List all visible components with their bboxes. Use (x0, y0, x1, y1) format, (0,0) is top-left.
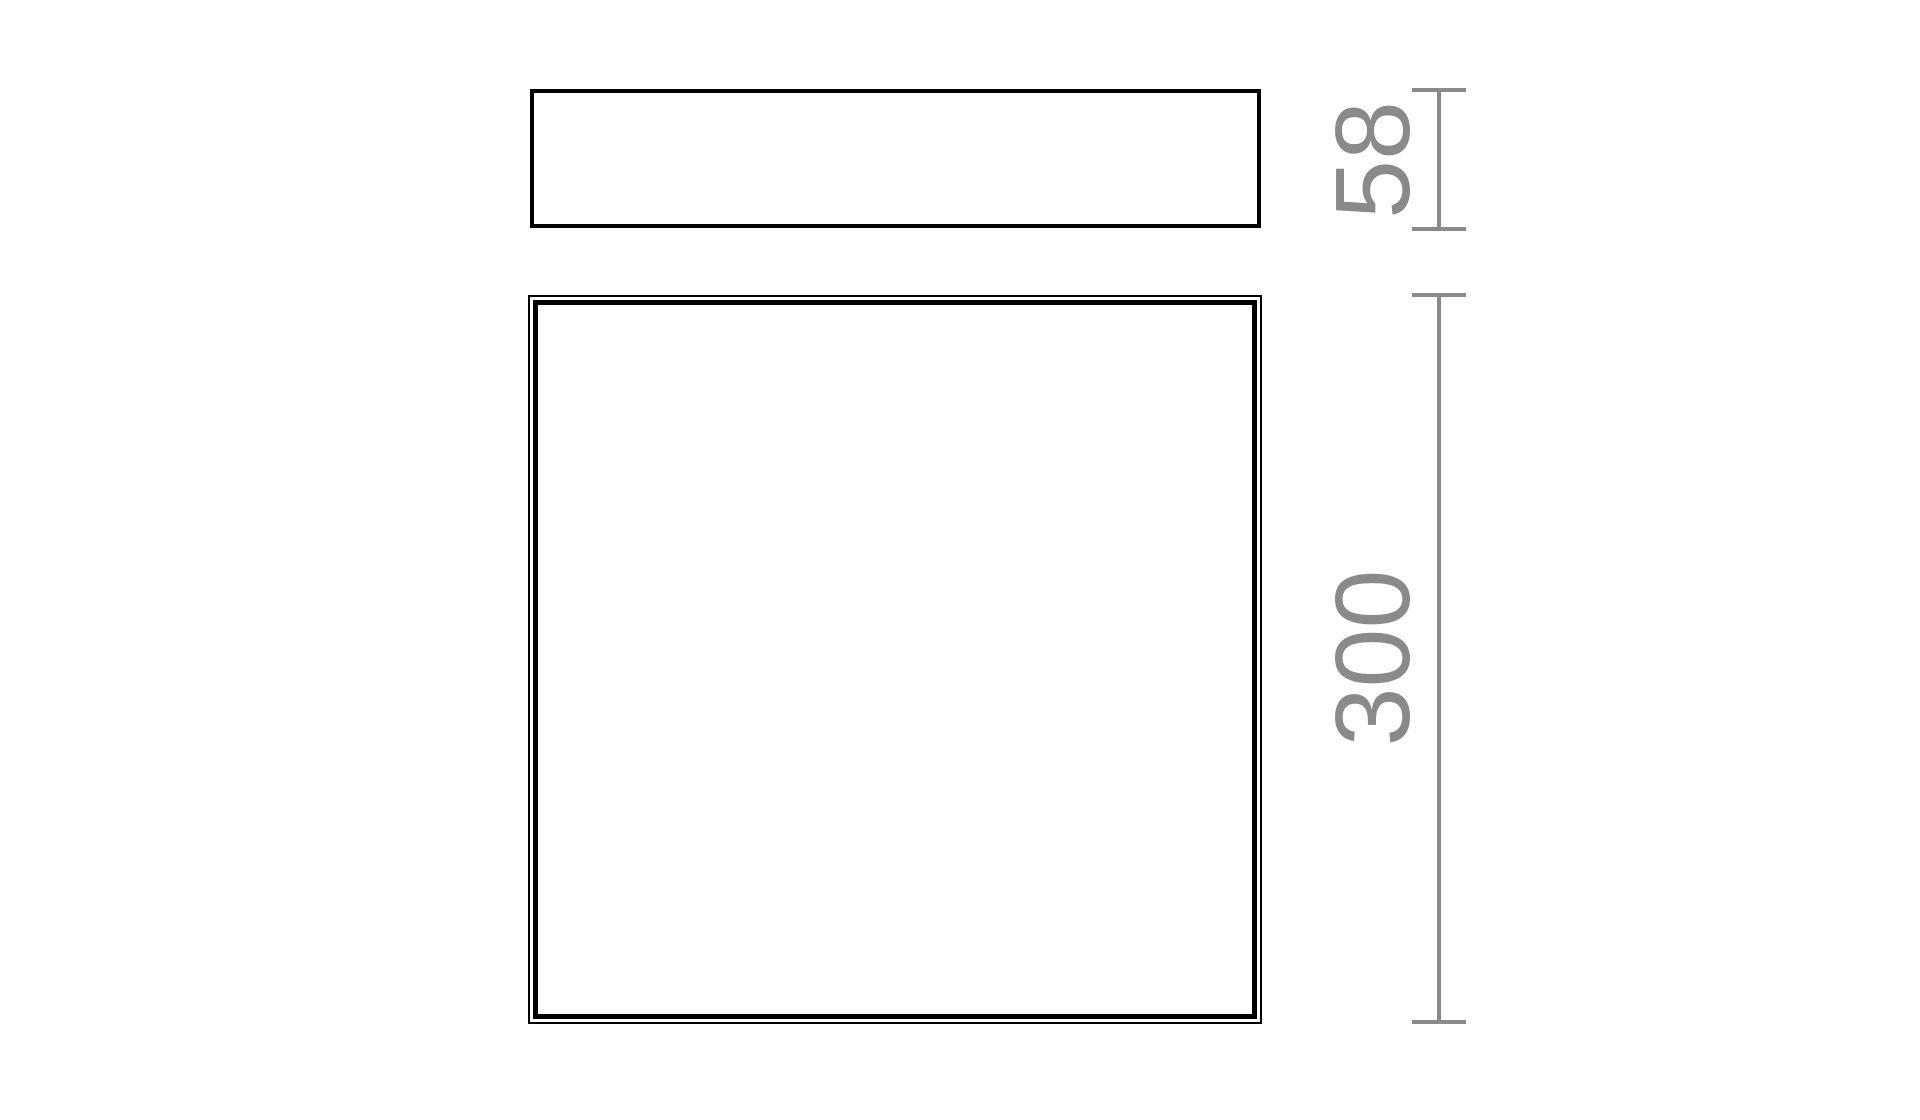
dimension-depth-cap-bottom (1412, 227, 1466, 231)
dimension-depth-line (1437, 88, 1441, 231)
dimension-width-cap-bottom (1412, 1020, 1466, 1024)
dimension-depth-cap-top (1412, 88, 1466, 92)
dimension-width-cap-top (1412, 293, 1466, 297)
top-view-inner-outline (533, 300, 1257, 1019)
top-view-outer-outline (528, 295, 1262, 1024)
drawing-canvas: 58 300 (0, 0, 1920, 1120)
dimension-depth-label: 58 (1320, 101, 1426, 219)
dimension-width-line (1437, 295, 1441, 1024)
side-view-outline (530, 89, 1261, 228)
dimension-width-label: 300 (1320, 570, 1426, 747)
